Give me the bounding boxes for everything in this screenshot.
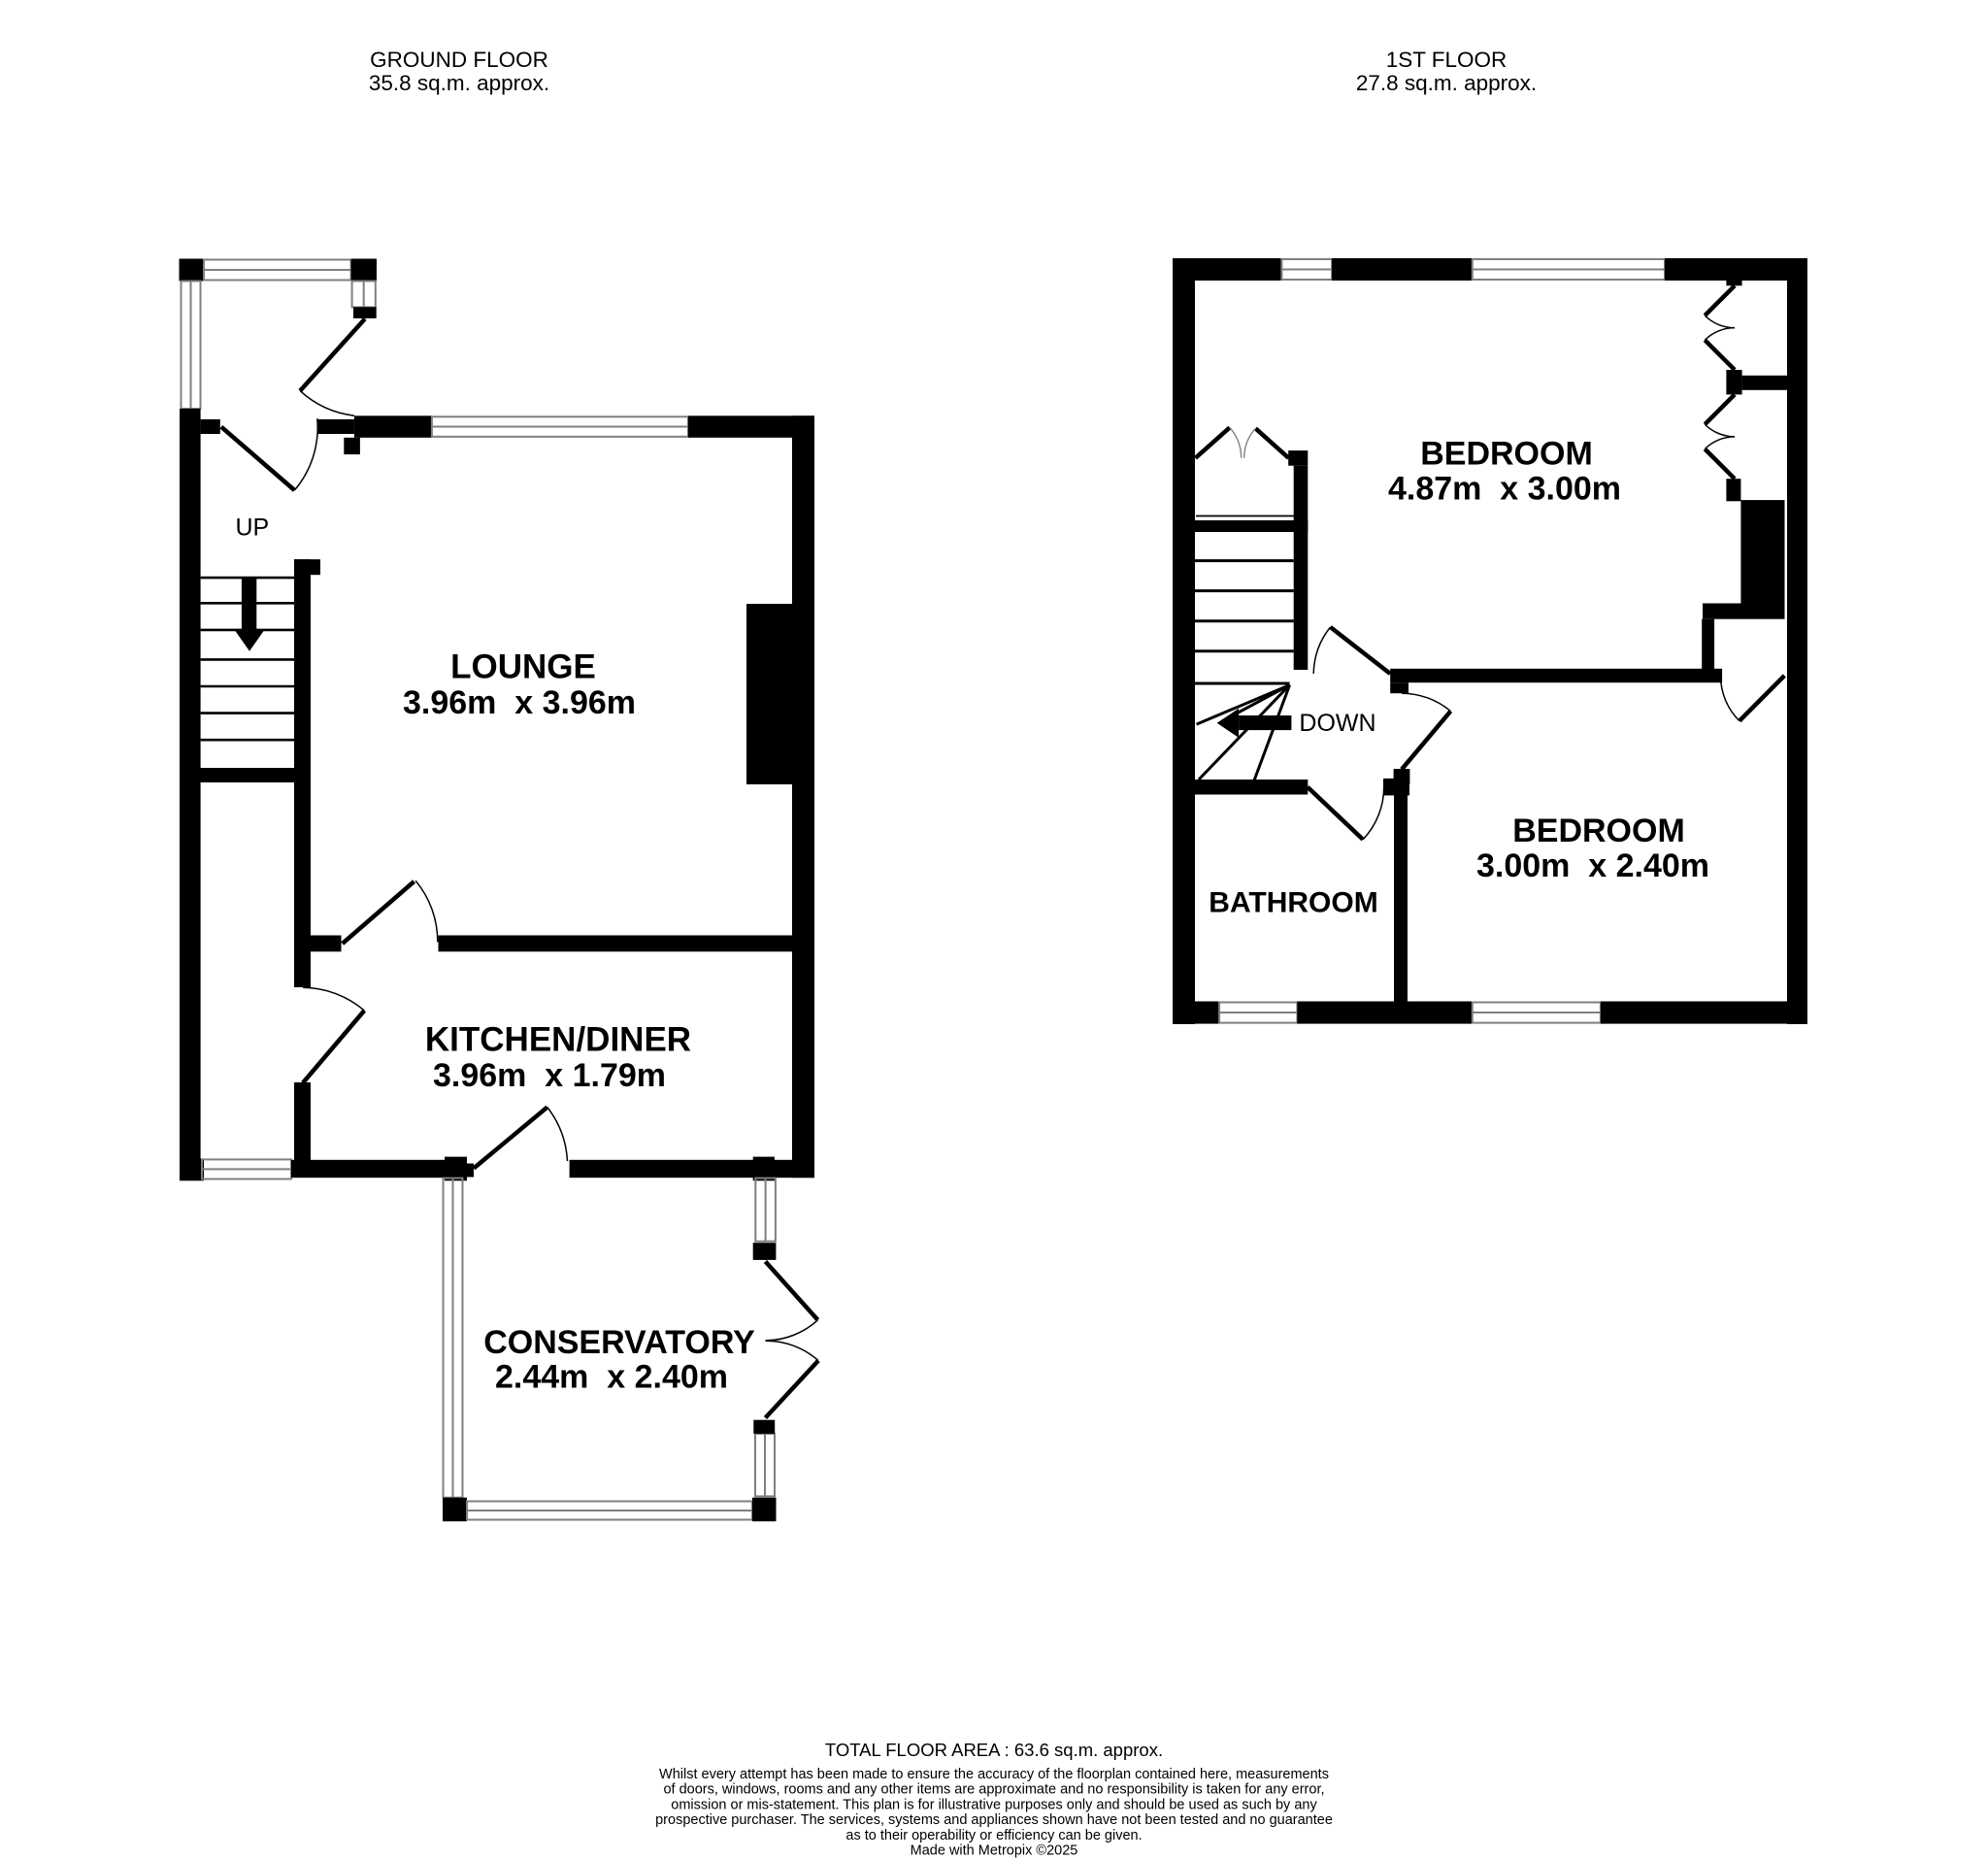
svg-text:35.8 sq.m. approx.: 35.8 sq.m. approx. <box>369 71 549 95</box>
svg-text:omission or mis-statement. Thi: omission or mis-statement. This plan is … <box>671 1797 1317 1812</box>
svg-text:BEDROOM: BEDROOM <box>1512 813 1685 849</box>
svg-text:BEDROOM: BEDROOM <box>1420 435 1593 472</box>
svg-text:BATHROOM: BATHROOM <box>1209 887 1377 919</box>
svg-text:UP: UP <box>236 515 270 542</box>
svg-text:as to their operability or eff: as to their operability or efficiency ca… <box>845 1828 1142 1843</box>
svg-text:27.8 sq.m. approx.: 27.8 sq.m. approx. <box>1356 71 1537 95</box>
svg-text:3.96m x 1.79m: 3.96m x 1.79m <box>433 1057 666 1094</box>
svg-text:DOWN: DOWN <box>1299 710 1375 737</box>
svg-text:3.96m x 3.96m: 3.96m x 3.96m <box>403 684 636 721</box>
svg-text:4.87m x 3.00m: 4.87m x 3.00m <box>1388 471 1621 508</box>
svg-text:CONSERVATORY: CONSERVATORY <box>483 1324 755 1361</box>
svg-text:of doors, windows, rooms and a: of doors, windows, rooms and any other i… <box>663 1782 1324 1798</box>
svg-text:Whilst every attempt has been: Whilst every attempt has been made to en… <box>659 1767 1329 1782</box>
svg-text:2.44m x 2.40m: 2.44m x 2.40m <box>495 1359 728 1396</box>
svg-text:prospective purchaser. The ser: prospective purchaser. The services, sys… <box>655 1812 1333 1828</box>
svg-text:KITCHEN/DINER: KITCHEN/DINER <box>425 1021 691 1059</box>
svg-text:TOTAL FLOOR AREA : 63.6 sq.m.: TOTAL FLOOR AREA : 63.6 sq.m. approx. <box>825 1740 1163 1760</box>
svg-text:Made with Metropix ©2025: Made with Metropix ©2025 <box>911 1843 1078 1859</box>
svg-text:1ST FLOOR: 1ST FLOOR <box>1386 48 1508 72</box>
svg-text:LOUNGE: LOUNGE <box>450 648 596 686</box>
svg-text:3.00m x 2.40m: 3.00m x 2.40m <box>1476 847 1709 884</box>
svg-text:GROUND FLOOR: GROUND FLOOR <box>370 48 548 72</box>
